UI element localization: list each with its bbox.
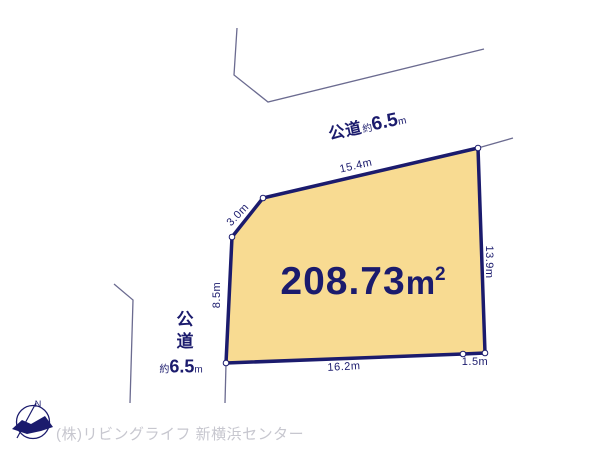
road-edge-extension-line-bottom <box>225 364 226 403</box>
road-width-unit: m <box>194 365 202 376</box>
compass-north-label: N <box>35 399 42 409</box>
land-plot-diagram: N 公道約6.5m 公道 約6.5m 15.4m 3.0m 8.5m 13.9m… <box>0 0 600 450</box>
vertex-dot <box>482 350 488 356</box>
road-width: 6.5 <box>169 357 194 378</box>
road-label-left-name: 公道 <box>175 310 192 354</box>
dimension-bottom-edge: 16.2m <box>327 360 361 374</box>
vertex-dot <box>260 195 266 201</box>
area-value: 208.73 <box>280 260 405 304</box>
road-edge-extension-line <box>478 138 513 148</box>
compass-icon: N <box>12 399 53 439</box>
plot-polygon <box>226 148 485 363</box>
area-exponent: 2 <box>435 264 447 286</box>
area-unit: m <box>406 264 436 302</box>
dimension-bottom-right-edge: 1.5m <box>462 356 488 368</box>
dimension-left-edge: 8.5m <box>211 282 223 308</box>
vertex-dot <box>229 234 235 240</box>
approx-prefix: 約 <box>159 361 169 376</box>
neighbor-boundary-line-left <box>114 284 133 403</box>
neighbor-boundary-line-top <box>234 28 484 102</box>
road-label-left-width: 約6.5m <box>159 357 202 378</box>
diagram-canvas: N <box>0 0 600 450</box>
dimension-right-edge: 13.9m <box>483 245 495 278</box>
company-watermark: (株)リビングライフ 新横浜センター <box>56 423 304 444</box>
vertex-dot <box>223 360 229 366</box>
vertex-dot <box>475 145 481 151</box>
area-label: 208.73m2 <box>280 260 447 304</box>
